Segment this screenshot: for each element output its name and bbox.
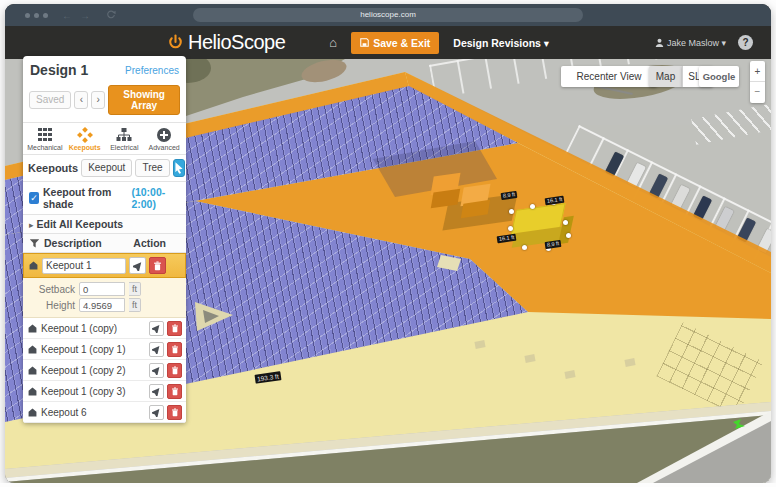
showing-array-button[interactable]: Showing Array xyxy=(108,85,180,115)
tab-advanced[interactable]: Advanced xyxy=(144,127,184,151)
select-tool-button[interactable] xyxy=(173,159,185,177)
setback-unit: ft xyxy=(129,282,141,296)
shade-label: Keepout from shade xyxy=(43,186,127,210)
height-unit: ft xyxy=(129,298,141,312)
zoom-control: + − xyxy=(750,61,765,103)
selected-keepout-row[interactable] xyxy=(23,253,186,278)
keepout-list-row[interactable]: Keepout 1 (copy 1) xyxy=(23,339,186,360)
design-revisions-menu[interactable]: Design Revisions ▾ xyxy=(453,37,549,49)
action-column-header: Action xyxy=(133,237,166,249)
address-bar[interactable]: helioscope.com xyxy=(193,8,583,22)
locate-keepout-button[interactable] xyxy=(149,363,164,378)
power-icon xyxy=(167,34,184,51)
minimize-window-icon[interactable] xyxy=(34,13,39,18)
locate-keepout-button[interactable] xyxy=(149,321,164,336)
save-icon xyxy=(360,38,369,47)
design-title: Design 1 xyxy=(30,62,88,78)
trash-icon xyxy=(171,387,179,396)
recenter-view-button[interactable]: Recenter View xyxy=(561,66,657,87)
map-button[interactable]: Map xyxy=(649,66,682,87)
logo-text: HelioScope xyxy=(188,31,285,54)
maximize-window-icon[interactable] xyxy=(43,13,48,18)
tab-mechanical[interactable]: Mechanical xyxy=(25,127,65,151)
resize-handle[interactable] xyxy=(509,209,514,214)
expand-triangle-icon: ▸ xyxy=(29,220,34,230)
design-sidebar: Design 1 Preferences Saved ‹ › Showing A… xyxy=(23,56,186,423)
delete-keepout-button[interactable] xyxy=(167,405,182,420)
trash-icon xyxy=(171,345,179,354)
advanced-icon xyxy=(156,127,172,143)
zoom-in-button[interactable]: + xyxy=(750,61,765,82)
home-icon[interactable]: ⌂ xyxy=(329,35,337,50)
keepout-tab[interactable]: Keepout xyxy=(81,159,132,177)
refresh-icon[interactable] xyxy=(106,10,116,20)
delete-keepout-button[interactable] xyxy=(167,363,182,378)
location-arrow-icon xyxy=(152,366,161,375)
keepout-list-row[interactable]: Keepout 1 (copy) xyxy=(23,318,186,339)
preferences-link[interactable]: Preferences xyxy=(125,65,179,76)
resize-handle[interactable] xyxy=(508,226,513,231)
delete-keepout-button[interactable] xyxy=(149,257,166,274)
close-window-icon[interactable] xyxy=(25,13,30,18)
forward-icon[interactable]: → xyxy=(80,10,90,21)
mechanical-icon xyxy=(37,127,53,143)
browser-window: ← → helioscope.com HelioScope ⌂ Save & E… xyxy=(5,4,771,483)
locate-keepout-button[interactable] xyxy=(149,405,164,420)
delete-keepout-button[interactable] xyxy=(167,321,182,336)
user-icon xyxy=(655,38,664,47)
shade-checkbox[interactable]: ✓ xyxy=(29,192,39,204)
app-header: HelioScope ⌂ Save & Exit Design Revision… xyxy=(5,26,771,59)
browser-chrome: ← → helioscope.com xyxy=(5,4,771,26)
redo-button[interactable]: › xyxy=(91,91,105,109)
keepout-shape-icon xyxy=(28,260,39,271)
trash-icon xyxy=(171,324,179,333)
keepout-list-row[interactable]: Keepout 1 (copy 3) xyxy=(23,381,186,402)
resize-handle[interactable] xyxy=(522,245,527,250)
location-arrow-icon xyxy=(133,261,143,271)
tree-tab[interactable]: Tree xyxy=(135,159,169,177)
setback-label: Setback xyxy=(23,284,75,295)
location-arrow-icon xyxy=(152,408,161,417)
north-arrow-marker xyxy=(733,419,745,429)
keepout-name-input[interactable] xyxy=(42,258,126,274)
helioscope-logo[interactable]: HelioScope xyxy=(167,31,285,54)
zoom-out-button[interactable]: − xyxy=(750,82,765,102)
parking-hash-marks xyxy=(691,103,771,145)
locate-keepout-button[interactable] xyxy=(129,257,146,274)
back-icon[interactable]: ← xyxy=(62,10,72,21)
undo-button[interactable]: ‹ xyxy=(74,91,88,109)
location-arrow-icon xyxy=(152,324,161,333)
tab-keepouts[interactable]: Keepouts xyxy=(65,127,105,151)
tab-electrical[interactable]: Electrical xyxy=(105,127,145,151)
delete-keepout-button[interactable] xyxy=(167,384,182,399)
resize-handle[interactable] xyxy=(566,233,571,238)
keepout-list-row[interactable]: Keepout 6 xyxy=(23,402,186,423)
keepouts-icon xyxy=(77,127,93,143)
filter-icon[interactable] xyxy=(29,238,40,249)
keepout-shape-icon xyxy=(27,407,38,418)
keepouts-panel-title: Keepouts xyxy=(28,162,78,174)
trash-icon xyxy=(171,408,179,417)
traffic-lights[interactable] xyxy=(25,13,48,18)
description-column-header: Description xyxy=(44,237,102,249)
save-exit-button[interactable]: Save & Exit xyxy=(351,32,439,54)
setback-input[interactable] xyxy=(79,282,125,296)
height-label: Height xyxy=(23,300,75,311)
location-arrow-icon xyxy=(152,387,161,396)
saved-button[interactable]: Saved xyxy=(29,91,71,109)
height-input[interactable] xyxy=(79,298,125,312)
keepout-shape-icon xyxy=(27,344,38,355)
trash-icon xyxy=(153,261,162,271)
locate-keepout-button[interactable] xyxy=(149,384,164,399)
resize-handle[interactable] xyxy=(530,204,535,209)
cursor-icon xyxy=(174,162,184,174)
keepout-shape-icon xyxy=(27,365,38,376)
trash-icon xyxy=(171,366,179,375)
location-arrow-icon xyxy=(152,345,161,354)
google-button[interactable]: Google xyxy=(699,66,739,87)
edit-all-keepouts-toggle[interactable]: ▸Edit All Keepouts xyxy=(23,215,186,234)
resize-handle[interactable] xyxy=(563,220,568,225)
electrical-icon xyxy=(116,127,132,143)
keepout-shape-icon xyxy=(27,386,38,397)
delete-keepout-button[interactable] xyxy=(167,342,182,357)
keepout-list-row[interactable]: Keepout 1 (copy 2) xyxy=(23,360,186,381)
keepout-shape-icon xyxy=(27,323,38,334)
shade-time-range[interactable]: (10:00-2:00) xyxy=(131,186,180,210)
help-icon[interactable]: ? xyxy=(738,35,753,50)
user-menu[interactable]: Jake Maslow ▾ xyxy=(655,38,726,48)
locate-keepout-button[interactable] xyxy=(149,342,164,357)
